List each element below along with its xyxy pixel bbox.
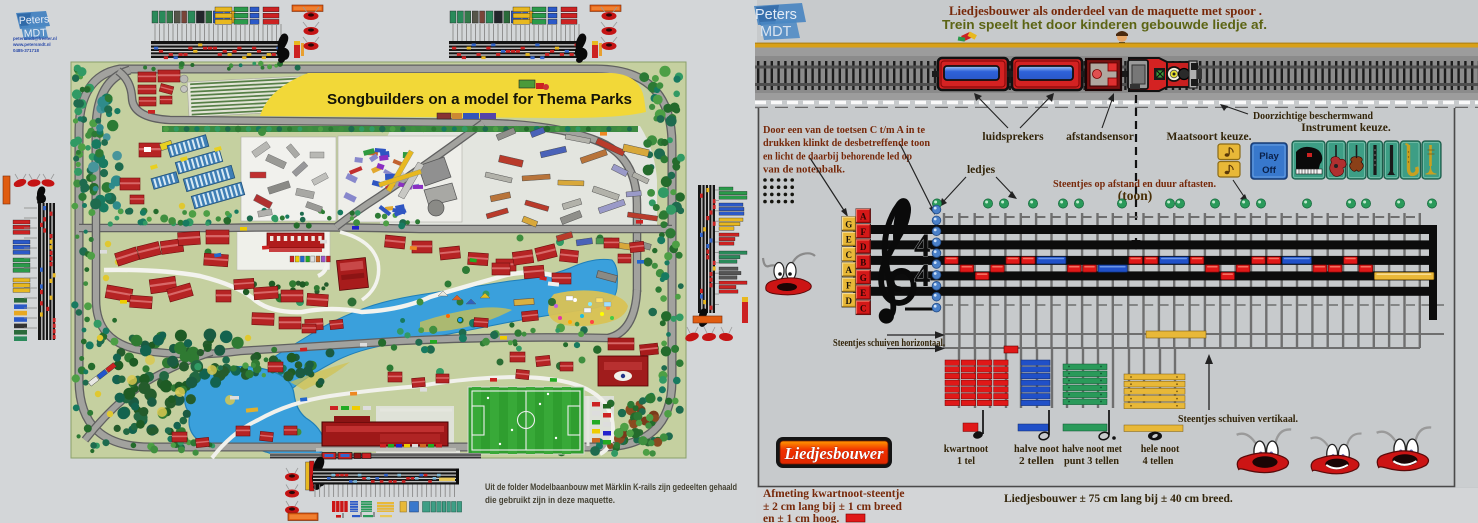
svg-text:D: D: [845, 296, 852, 306]
svg-text:4 tellen: 4 tellen: [1143, 456, 1174, 467]
svg-text:± 2 cm lang bij ± 1 cm breed: ± 2 cm lang bij ± 1 cm breed: [763, 501, 903, 513]
svg-text:Liedjesbouwer: Liedjesbouwer: [784, 444, 885, 463]
svg-text:Peters: Peters: [19, 13, 50, 27]
svg-text:halve noot met: halve noot met: [1062, 444, 1123, 455]
svg-text:Afmeting kwartnoot-steentje: Afmeting kwartnoot-steentje: [763, 488, 904, 500]
svg-text:hele noot: hele noot: [1141, 444, 1180, 455]
svg-text:2 tellen: 2 tellen: [1019, 456, 1054, 467]
svg-text:Maatsoort keuze.: Maatsoort keuze.: [1167, 131, 1252, 143]
svg-text:punt 3 tellen: punt 3 tellen: [1064, 456, 1119, 467]
svg-text:Steentjes schuiven horizontaal: Steentjes schuiven horizontaal.: [833, 338, 945, 349]
svg-text:B: B: [860, 258, 866, 268]
svg-text:en licht de daarbij behorende: en licht de daarbij behorende led op: [763, 150, 912, 162]
svg-text:halve noot: halve noot: [1014, 444, 1060, 455]
svg-text:F: F: [846, 281, 852, 291]
svg-text:E: E: [860, 288, 866, 298]
svg-text:afstandsensor: afstandsensor: [1066, 131, 1134, 143]
svg-text:A: A: [860, 212, 867, 222]
svg-text:van de notenbalk.: van de notenbalk.: [763, 164, 845, 176]
svg-text:www.petersmdt.nl: www.petersmdt.nl: [12, 42, 51, 47]
svg-text:drukken klinkt de desbetreffen: drukken klinkt de desbetreffende toon: [763, 137, 930, 149]
svg-text:die gebruikt zijn in deze maqu: die gebruikt zijn in deze maquette.: [485, 495, 615, 506]
svg-text:Doorzichtige beschermwand: Doorzichtige beschermwand: [1253, 110, 1373, 122]
svg-text:1 tel: 1 tel: [957, 456, 975, 467]
svg-text:D: D: [860, 242, 867, 252]
svg-text:A: A: [845, 265, 852, 275]
svg-text:Door een van de toetsen C t/m: Door een van de toetsen C t/m A in te: [763, 124, 925, 136]
svg-text:Uit de folder Modelbaanbouw me: Uit de folder Modelbaanbouw met Märklin …: [485, 482, 737, 493]
svg-text:MDT: MDT: [760, 24, 792, 40]
svg-text:Steentjes schuiven vertikaal.: Steentjes schuiven vertikaal.: [1178, 414, 1298, 425]
svg-text:Liedjesbouwer ± 75 cm lang bij: Liedjesbouwer ± 75 cm lang bij ± 40 cm b…: [1004, 493, 1233, 505]
svg-text:4: 4: [914, 258, 931, 294]
svg-text:C: C: [845, 250, 852, 260]
svg-text:E: E: [846, 235, 852, 245]
svg-text:C: C: [860, 303, 867, 313]
svg-text:kwartnoot: kwartnoot: [944, 444, 989, 455]
svg-text:Off: Off: [1262, 165, 1277, 176]
svg-text:F: F: [860, 227, 866, 237]
svg-text:0485-371718: 0485-371718: [13, 48, 39, 53]
svg-text:Songbuilders on a model for Th: Songbuilders on a model for Thema Parks: [327, 92, 632, 108]
svg-text:Instrument keuze.: Instrument keuze.: [1301, 122, 1391, 134]
svg-text:Play: Play: [1259, 151, 1279, 162]
svg-text:en ± 1 cm hoog.: en ± 1 cm hoog.: [763, 513, 839, 523]
svg-text:ledjes: ledjes: [967, 164, 996, 176]
svg-text:Liedjesbouwer als onderdeel va: Liedjesbouwer als onderdeel van de maque…: [949, 3, 1262, 18]
svg-text:luidsprekers: luidsprekers: [982, 131, 1044, 143]
svg-text:Peters: Peters: [755, 7, 797, 23]
svg-text:petersmdt@freeler.nl: petersmdt@freeler.nl: [13, 36, 57, 41]
svg-text:G: G: [845, 219, 852, 229]
svg-text:G: G: [860, 273, 867, 283]
svg-text:Trein speelt het door kinderen: Trein speelt het door kinderen gebouwde …: [942, 17, 1267, 32]
